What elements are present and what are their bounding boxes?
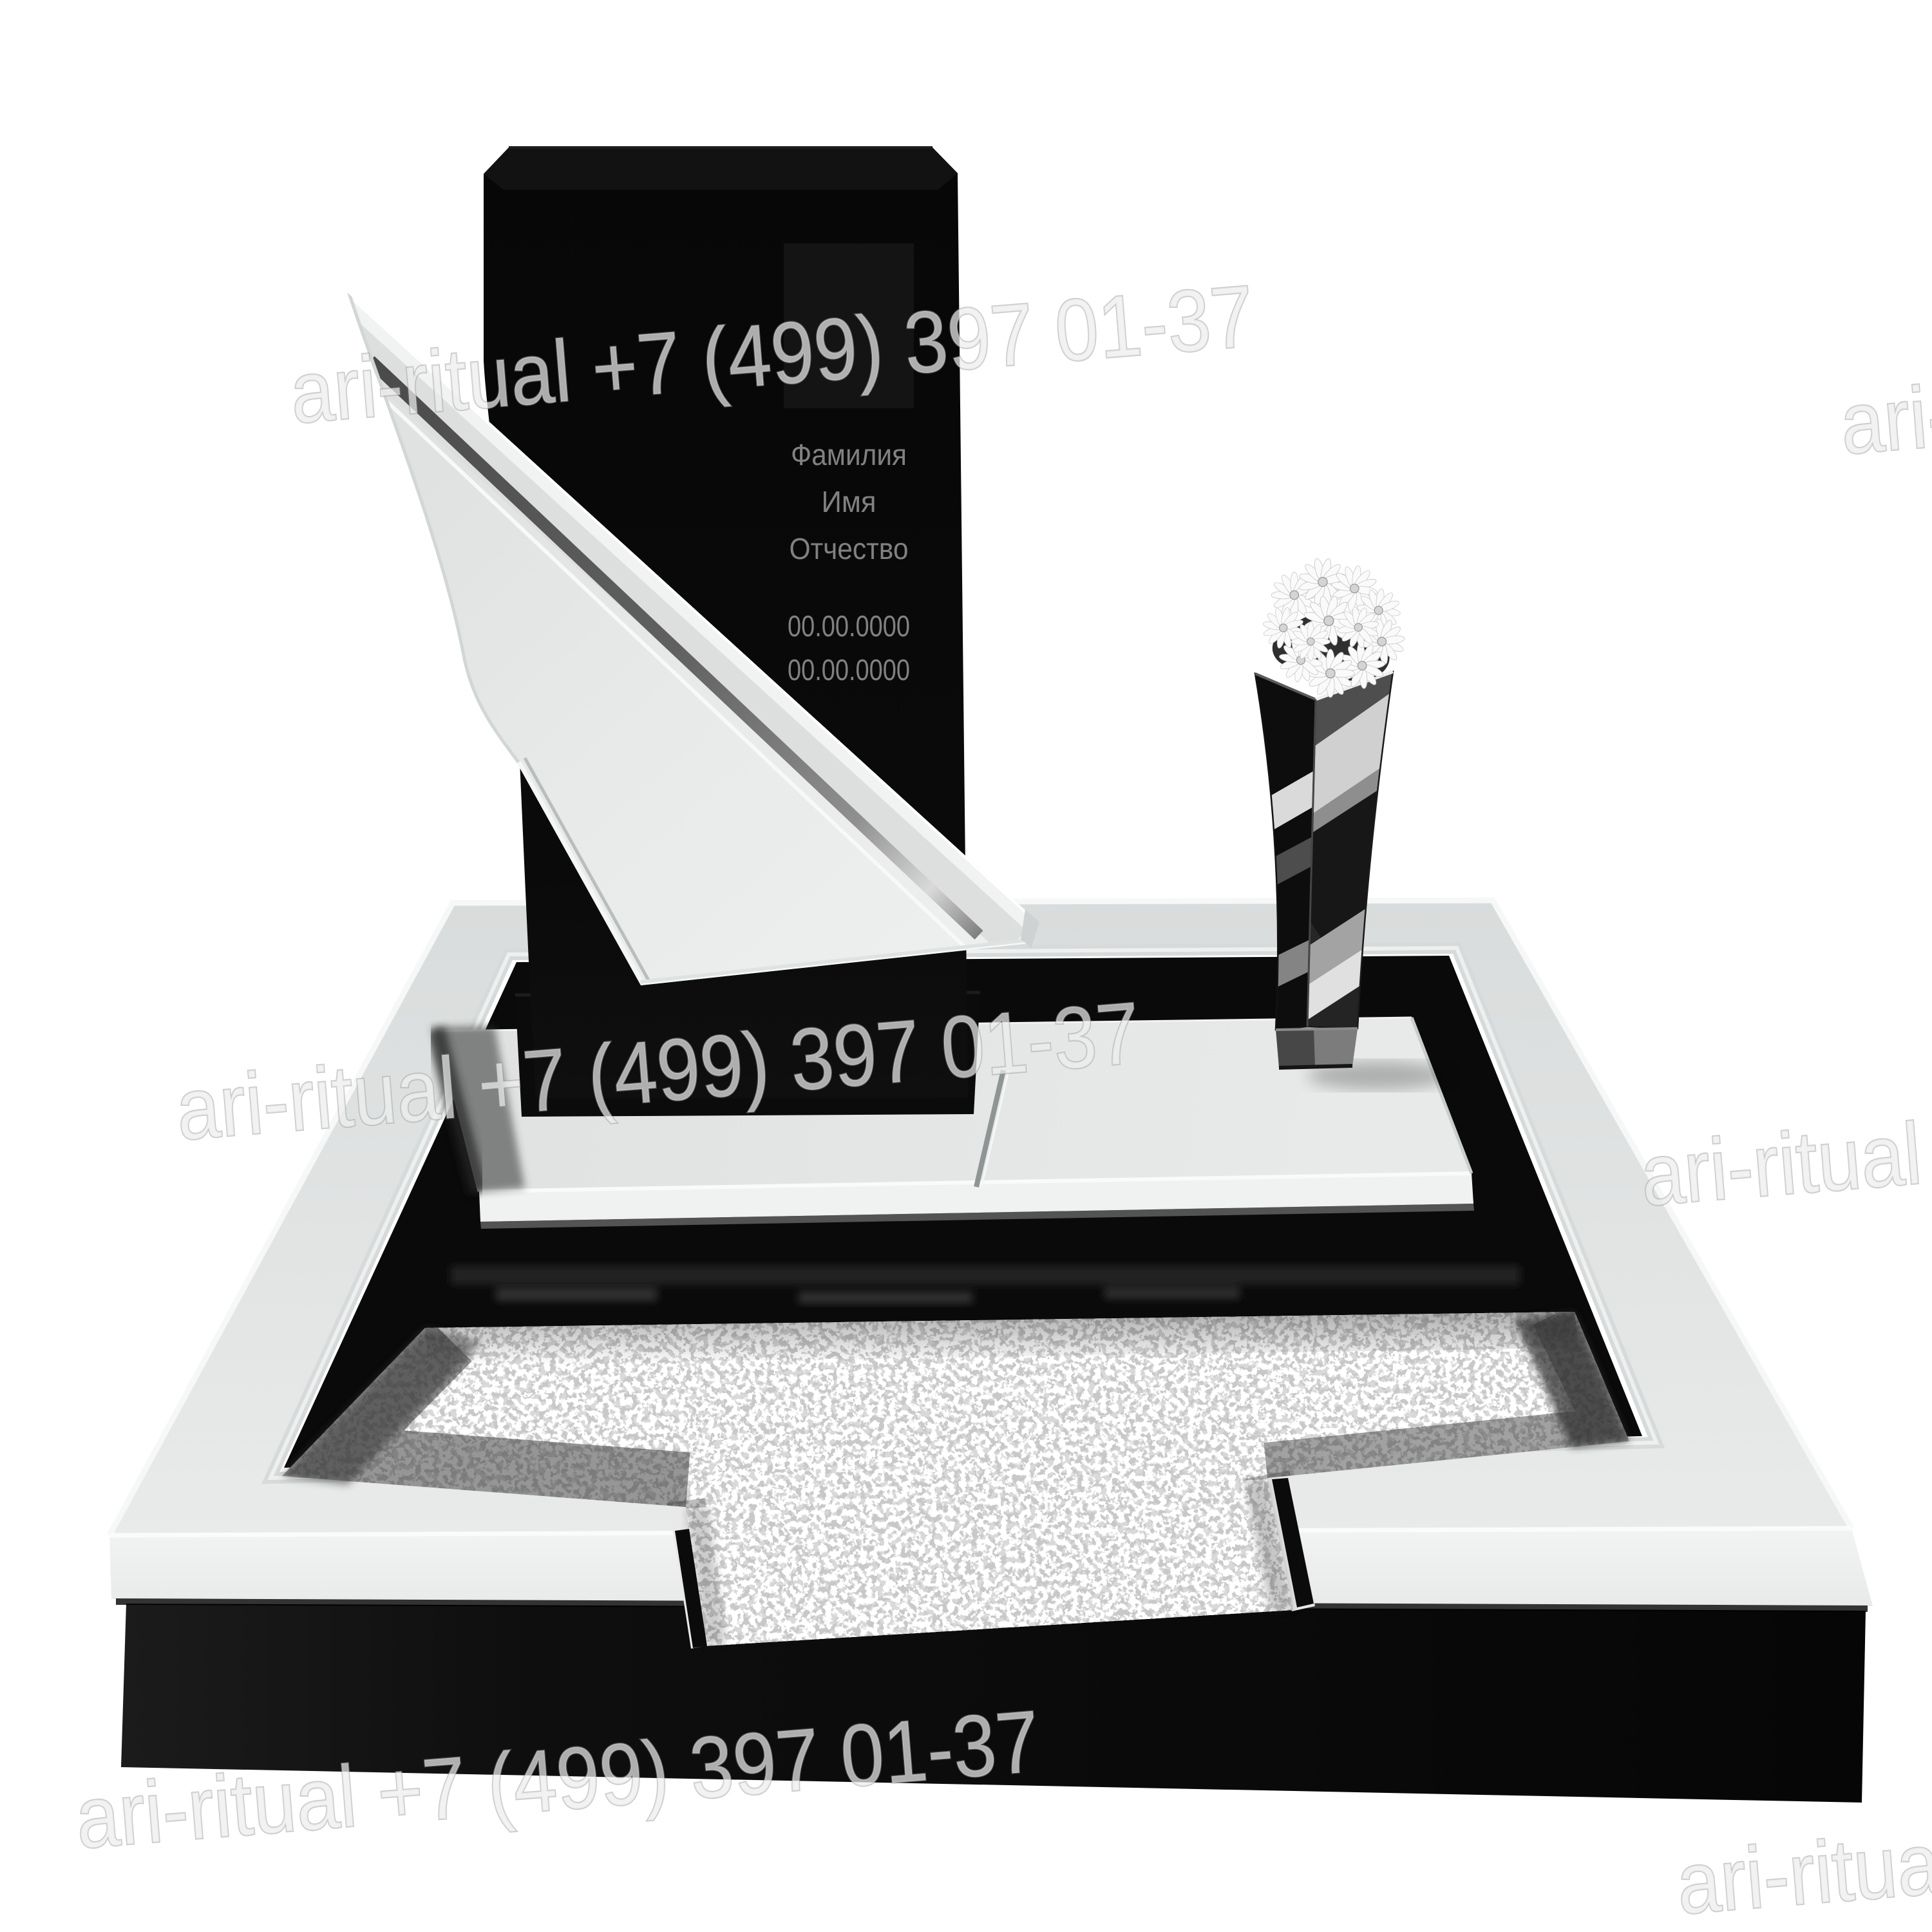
svg-text:Имя: Имя: [822, 485, 876, 518]
svg-text:00.00.0000: 00.00.0000: [788, 609, 910, 643]
svg-text:00.00.0000: 00.00.0000: [788, 653, 910, 687]
svg-text:Отчество: Отчество: [790, 532, 909, 565]
svg-text:Фамилия: Фамилия: [791, 438, 907, 471]
